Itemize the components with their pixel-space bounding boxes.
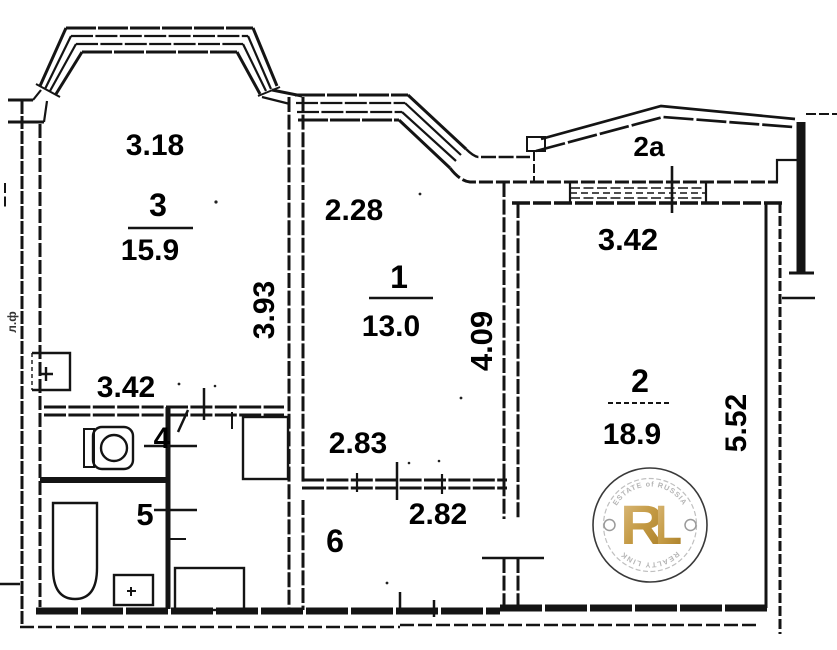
svg-text:2: 2 xyxy=(631,363,649,399)
svg-text:4.09: 4.09 xyxy=(464,311,499,371)
svg-text:2.82: 2.82 xyxy=(409,498,467,531)
svg-text:13.0: 13.0 xyxy=(362,310,420,343)
svg-text:L: L xyxy=(655,493,682,556)
svg-text:2a: 2a xyxy=(633,131,665,162)
svg-text:2.83: 2.83 xyxy=(329,427,387,460)
svg-text:6: 6 xyxy=(326,523,344,559)
svg-text:3.42: 3.42 xyxy=(598,222,658,257)
svg-text:15.9: 15.9 xyxy=(121,234,179,267)
svg-text:л.ф: л.ф xyxy=(5,311,19,333)
svg-text:4: 4 xyxy=(154,422,171,455)
svg-text:2.28: 2.28 xyxy=(325,194,383,227)
svg-text:3.93: 3.93 xyxy=(248,281,281,339)
svg-text:1: 1 xyxy=(390,259,408,295)
svg-text:3: 3 xyxy=(149,187,167,223)
svg-text:3.42: 3.42 xyxy=(97,371,155,404)
svg-text:5.52: 5.52 xyxy=(720,394,753,452)
svg-text:18.9: 18.9 xyxy=(603,418,661,451)
svg-text:3.18: 3.18 xyxy=(126,129,184,162)
svg-text:5: 5 xyxy=(136,497,153,532)
